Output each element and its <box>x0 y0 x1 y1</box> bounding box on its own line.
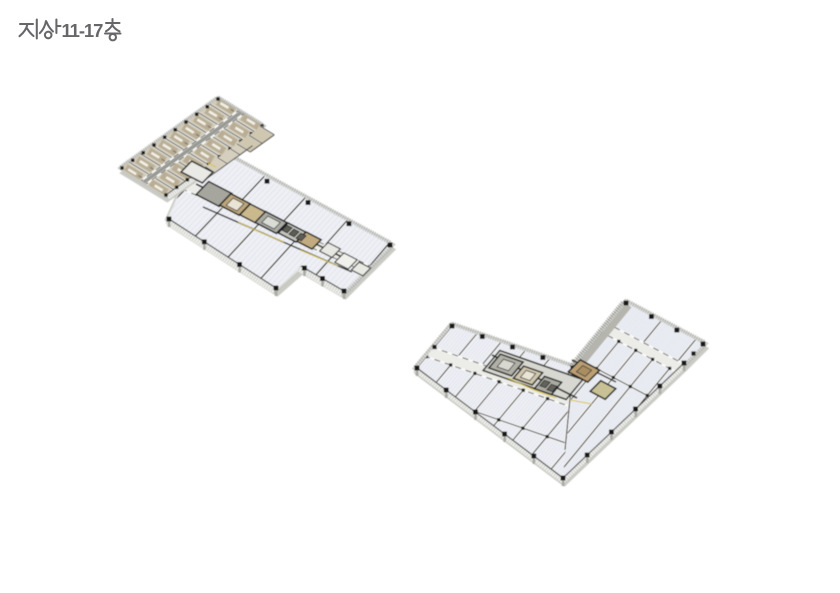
svg-text:11-17: 11-17 <box>62 20 104 41</box>
